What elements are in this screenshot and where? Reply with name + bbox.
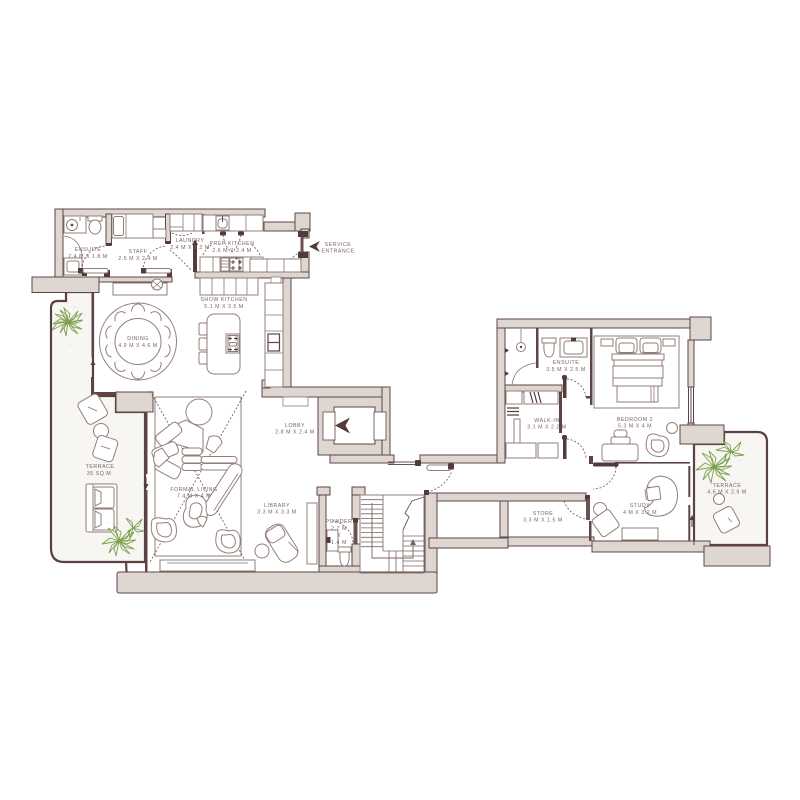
- svg-text:2.4 M X 1.2 M: 2.4 M X 1.2 M: [170, 245, 209, 251]
- svg-text:5.3 M X 4 M: 5.3 M X 4 M: [618, 424, 652, 430]
- svg-text:LOBBY: LOBBY: [285, 423, 305, 429]
- svg-text:1.4 M: 1.4 M: [331, 540, 347, 546]
- svg-text:5.1 M X 3.5 M: 5.1 M X 3.5 M: [204, 304, 243, 310]
- svg-text:PREP KITCHEN: PREP KITCHEN: [209, 241, 254, 247]
- svg-text:STORE: STORE: [533, 511, 554, 517]
- svg-text:SERVICE: SERVICE: [325, 242, 352, 248]
- svg-text:BEDROOM 2: BEDROOM 2: [617, 417, 653, 423]
- svg-text:3.3 M X 3.3 M: 3.3 M X 3.3 M: [257, 510, 296, 516]
- svg-text:2.5 M X 2.4 M: 2.5 M X 2.4 M: [118, 256, 157, 262]
- svg-text:WALK-IN: WALK-IN: [534, 418, 559, 424]
- svg-text:TERRACE: TERRACE: [713, 483, 742, 489]
- svg-text:ENSUITE: ENSUITE: [75, 247, 101, 253]
- svg-text:POWDER: POWDER: [326, 519, 353, 525]
- svg-text:2.7 M: 2.7 M: [331, 526, 347, 532]
- svg-text:SHOW KITCHEN: SHOW KITCHEN: [200, 297, 247, 303]
- svg-text:ENTRANCE: ENTRANCE: [321, 249, 354, 255]
- svg-text:3.3 M X 1.5 M: 3.3 M X 1.5 M: [523, 518, 562, 524]
- svg-text:STAFF: STAFF: [129, 249, 148, 255]
- svg-text:LIBRARY: LIBRARY: [264, 503, 290, 509]
- svg-text:3.5 M X 2.5 M: 3.5 M X 2.5 M: [546, 367, 585, 373]
- svg-text:4.9 M X 4.6 M: 4.9 M X 4.6 M: [118, 343, 157, 349]
- svg-text:4.6 M X 2.9 M: 4.6 M X 2.9 M: [707, 490, 746, 496]
- svg-text:LAUNDRY: LAUNDRY: [176, 238, 205, 244]
- svg-text:35 SQ M.: 35 SQ M.: [87, 471, 113, 477]
- svg-text:2.4 M X 1.8 M: 2.4 M X 1.8 M: [68, 254, 107, 260]
- svg-text:2.6 M X 2.4 M: 2.6 M X 2.4 M: [212, 248, 251, 254]
- svg-text:FORMAL LIVING: FORMAL LIVING: [170, 487, 217, 493]
- svg-text:X: X: [337, 533, 341, 539]
- svg-text:4 M X 3.2 M: 4 M X 3.2 M: [623, 510, 657, 516]
- svg-text:2.8 M X 2.4 M: 2.8 M X 2.4 M: [275, 430, 314, 436]
- svg-text:ENSUITE: ENSUITE: [553, 360, 579, 366]
- svg-text:TERRACE: TERRACE: [86, 464, 115, 470]
- svg-text:DINING: DINING: [127, 336, 149, 342]
- svg-text:7.4 M X 4 M: 7.4 M X 4 M: [177, 494, 211, 500]
- svg-text:STUDY: STUDY: [630, 503, 650, 509]
- svg-text:3.1 M X 2.2 M: 3.1 M X 2.2 M: [527, 425, 566, 431]
